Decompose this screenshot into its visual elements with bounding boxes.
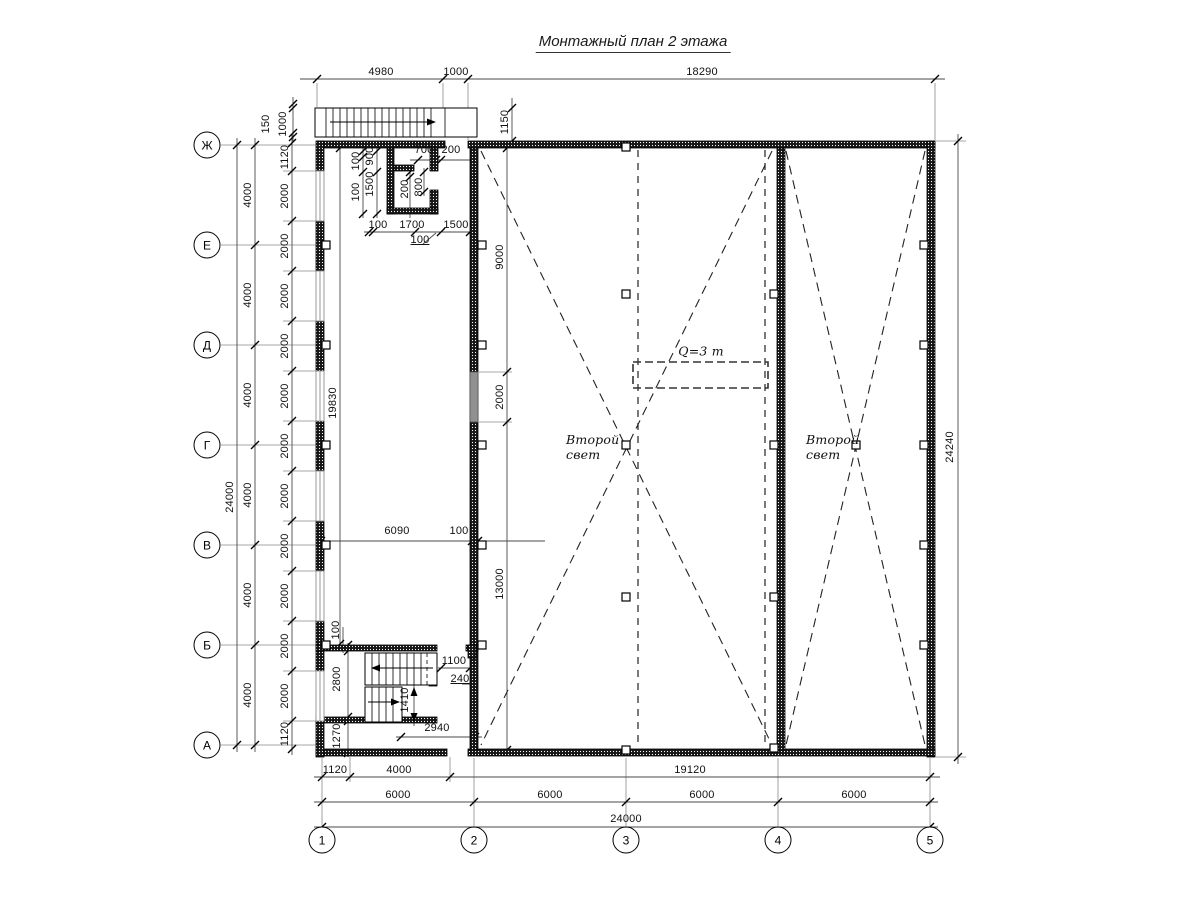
- wall-opening: [470, 372, 478, 422]
- drawing-sheet: Монтажный план 2 этажа 49801000182901501…: [0, 0, 1200, 900]
- exterior-stair-top: [315, 108, 477, 137]
- dimension-lines: [237, 79, 958, 827]
- plan-drawing: [0, 0, 1200, 900]
- interior-stair-bottom: [365, 653, 437, 722]
- crane-rails: [638, 150, 765, 748]
- extension-lines: [221, 83, 966, 827]
- crane-bridge: [633, 362, 768, 388]
- drawing-title: Монтажный план 2 этажа: [536, 33, 731, 53]
